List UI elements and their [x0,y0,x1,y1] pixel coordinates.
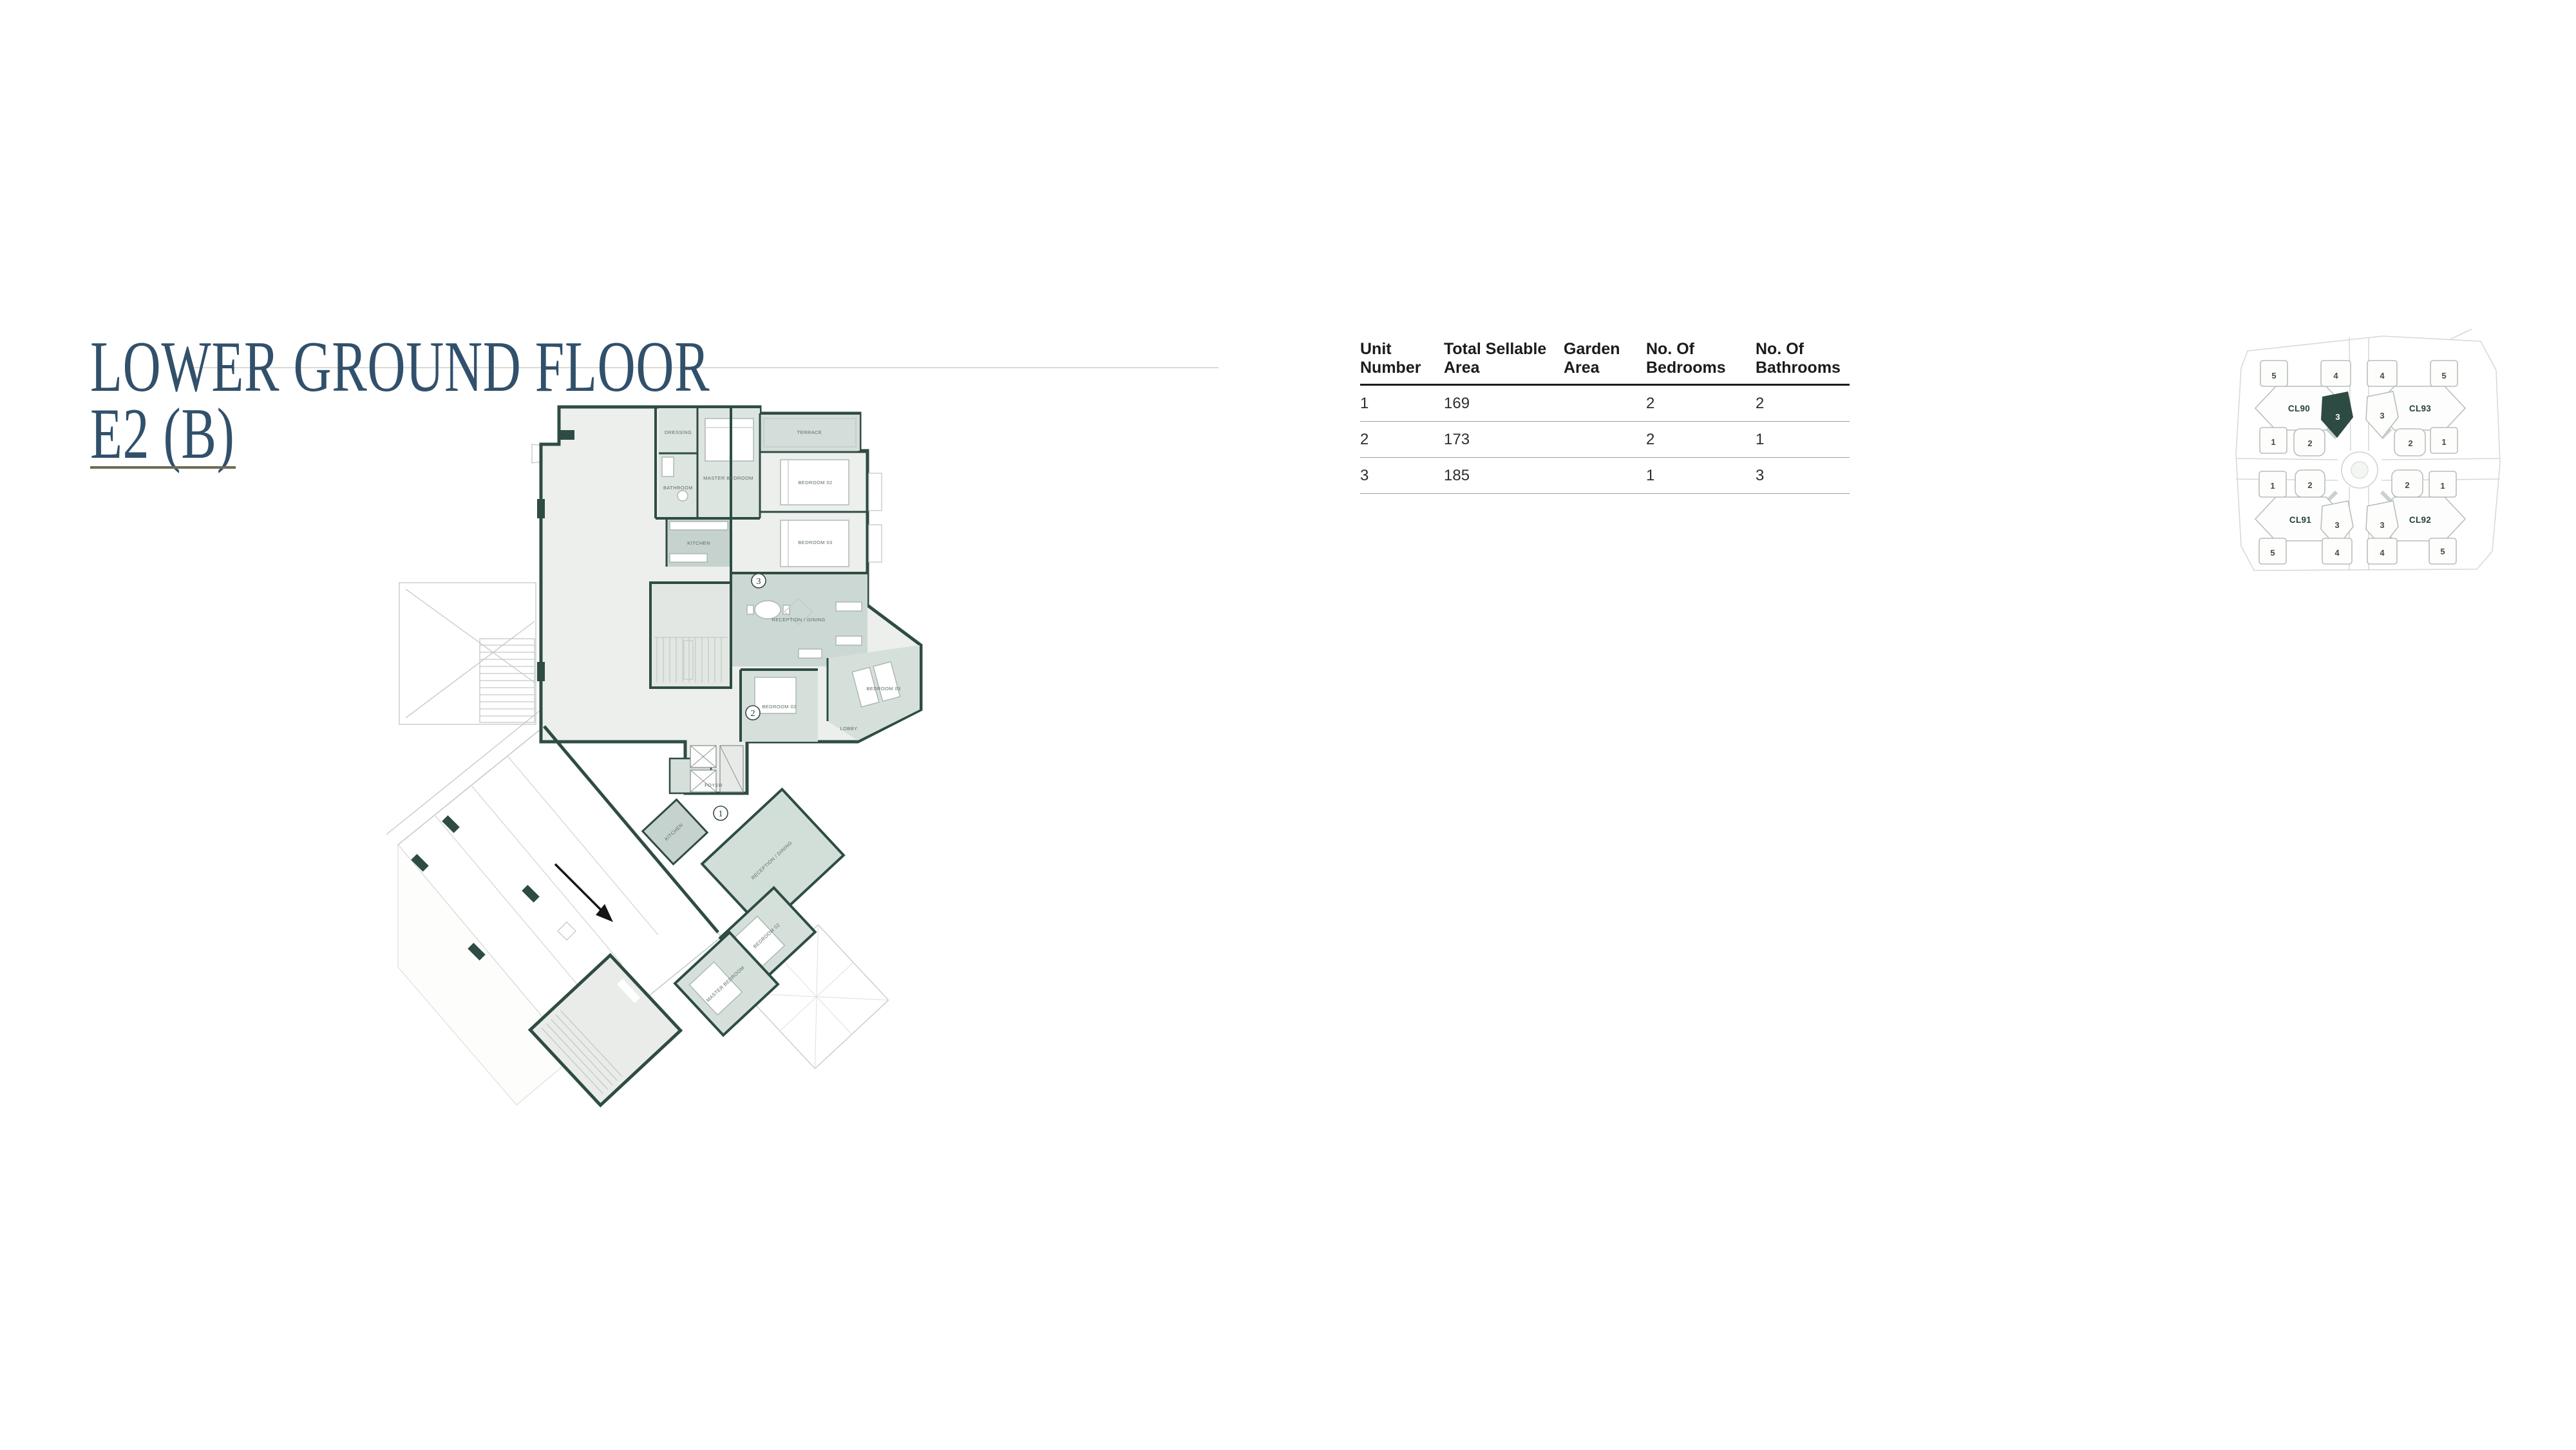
cell-sellable-area: 185 [1444,467,1564,485]
svg-text:2: 2 [2307,480,2312,490]
cluster-CL93: 4 5 3 2 1 CL93 [2366,361,2465,456]
cell-unit-number: 2 [1360,431,1444,449]
svg-text:2: 2 [2307,438,2312,448]
svg-text:1: 1 [719,809,723,819]
svg-text:1: 1 [2440,481,2445,491]
cell-bedrooms: 2 [1646,395,1756,413]
svg-text:1: 1 [2441,437,2446,447]
svg-text:3: 3 [2380,411,2384,420]
svg-text:3: 3 [2334,520,2339,530]
svg-text:5: 5 [2440,547,2445,556]
svg-text:3: 3 [2380,520,2384,530]
svg-text:3: 3 [757,577,761,587]
cluster-CL92: 2 1 3 4 5 CL92 [2366,470,2465,564]
svg-text:BEDROOM 02: BEDROOM 02 [798,480,832,485]
cluster-CL90: 5 4 3 1 2 CL90 [2255,361,2353,456]
svg-text:BEDROOM 02: BEDROOM 02 [762,704,796,710]
svg-text:3: 3 [2335,412,2340,422]
svg-text:4: 4 [2333,371,2338,381]
cell-bathrooms: 1 [1756,431,1850,449]
svg-text:KITCHEN: KITCHEN [687,540,710,546]
unit-table: Unit Number Total Sellable Area Garden A… [1360,340,1850,494]
svg-text:2: 2 [2405,480,2409,490]
svg-text:TERRACE: TERRACE [797,429,822,435]
svg-text:CL91: CL91 [2289,515,2311,525]
floor-plan: DRESSING MASTER BEDROOM TERRACE BATHROOM… [386,359,953,1122]
svg-text:RECEPTION / DINING: RECEPTION / DINING [772,617,825,623]
svg-text:5: 5 [2271,371,2276,381]
cell-sellable-area: 173 [1444,431,1564,449]
svg-text:4: 4 [2334,548,2340,558]
svg-text:2: 2 [751,709,755,719]
column-header-bedrooms: No. Of Bedrooms [1646,340,1756,377]
svg-text:BATHROOM: BATHROOM [663,485,693,491]
column-header-total-sellable-area: Total Sellable Area [1444,340,1564,377]
svg-text:DRESSING: DRESSING [665,429,692,435]
svg-text:4: 4 [2380,548,2385,558]
cell-sellable-area: 169 [1444,395,1564,413]
cell-unit-number: 3 [1360,467,1444,485]
cell-unit-number: 1 [1360,395,1444,413]
table-row: 3 185 1 3 [1360,458,1850,494]
svg-text:CL90: CL90 [2288,404,2310,413]
cell-bedrooms: 1 [1646,467,1756,485]
svg-text:LOBBY: LOBBY [840,726,857,731]
svg-text:CL92: CL92 [2409,515,2431,525]
cluster-CL91: 1 2 3 5 4 CL91 [2255,470,2353,564]
svg-text:BEDROOM 03: BEDROOM 03 [798,540,832,545]
cell-bedrooms: 2 [1646,431,1756,449]
site-location-map: 5 4 3 1 2 CL90 4 5 3 2 1 CL93 [2231,328,2515,592]
title-underline [90,466,236,469]
svg-text:CL93: CL93 [2409,404,2431,413]
column-header-unit-number: Unit Number [1360,340,1444,377]
table-row: 2 173 2 1 [1360,422,1850,458]
table-row: 1 169 2 2 [1360,386,1850,422]
svg-text:1: 1 [2271,437,2275,447]
svg-text:FOYER: FOYER [705,782,723,788]
svg-text:MASTER BEDROOM: MASTER BEDROOM [703,475,753,481]
stair-core [650,583,731,688]
svg-text:2: 2 [2408,438,2412,448]
svg-text:4: 4 [2380,371,2385,381]
cell-bathrooms: 2 [1756,395,1850,413]
cell-bathrooms: 3 [1756,467,1850,485]
svg-text:1: 1 [2270,481,2275,491]
svg-text:BEDROOM 03: BEDROOM 03 [866,686,900,692]
svg-text:5: 5 [2441,371,2446,381]
column-header-garden-area: Garden Area [1564,340,1646,377]
svg-text:5: 5 [2270,548,2275,558]
brochure-page: LOWER GROUND FLOOR E2 (B) [0,0,2576,1450]
column-header-bathrooms: No. Of Bathrooms [1756,340,1850,377]
table-header-row: Unit Number Total Sellable Area Garden A… [1360,340,1850,386]
